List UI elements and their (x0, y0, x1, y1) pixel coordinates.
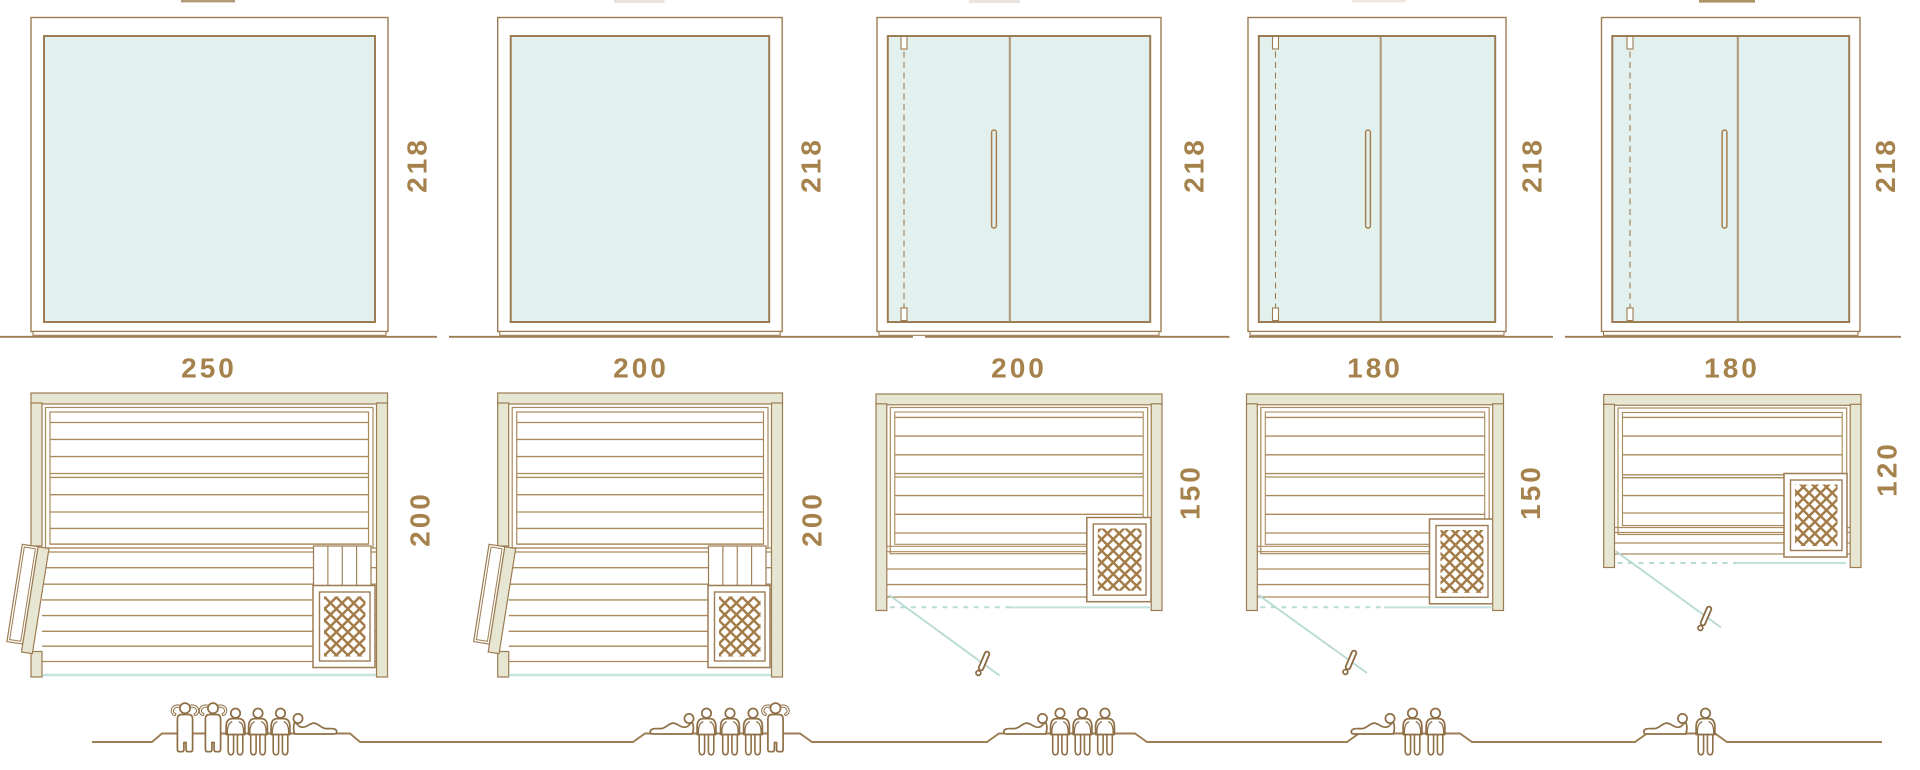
svg-text:218: 218 (1517, 137, 1548, 193)
svg-text:218: 218 (1179, 137, 1210, 193)
svg-text:250: 250 (181, 353, 237, 384)
svg-text:200: 200 (797, 491, 828, 547)
svg-text:180: 180 (1347, 353, 1403, 384)
svg-text:218: 218 (796, 137, 827, 193)
svg-text:218: 218 (402, 137, 433, 193)
svg-text:200: 200 (991, 353, 1047, 384)
svg-text:150: 150 (1175, 464, 1206, 520)
svg-text:180: 180 (1704, 353, 1760, 384)
svg-text:150: 150 (1515, 464, 1546, 520)
svg-text:120: 120 (1872, 441, 1903, 497)
svg-text:200: 200 (405, 491, 436, 547)
svg-text:200: 200 (613, 353, 669, 384)
svg-text:218: 218 (1870, 137, 1901, 193)
